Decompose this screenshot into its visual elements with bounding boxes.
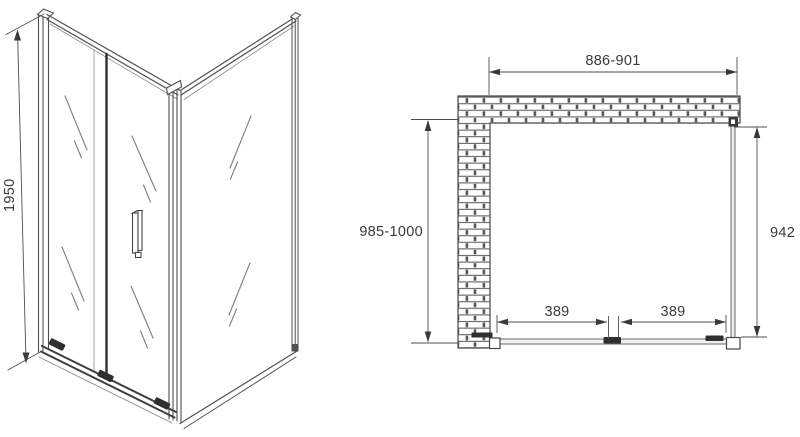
dimension-label-depth: 985-1000 [359, 224, 423, 240]
arrow-down-icon [23, 353, 30, 364]
plan-side-panel [731, 123, 735, 338]
dimension-label-door-left: 389 [544, 304, 569, 320]
shower-enclosure-drawing: 1950 886- [0, 0, 800, 437]
wall-bracket-top [729, 117, 739, 127]
door-track [472, 316, 741, 349]
arrow-up-icon [14, 30, 21, 41]
top-rail [47, 15, 180, 100]
arrow-up-icon [754, 127, 761, 138]
arrow-left-icon [489, 69, 500, 76]
dimension-label-side: 942 [770, 225, 795, 241]
dimension-label-door-right: 389 [660, 304, 685, 320]
plan-view: 886-901 985-1000 942 389 [359, 53, 795, 349]
arrow-down-icon [425, 332, 432, 343]
dimension-width-886-901: 886-901 [489, 53, 737, 95]
corner-profile-right [727, 338, 741, 350]
glass-shine-marks [62, 96, 251, 348]
technical-drawing-page: 1950 886- [0, 0, 800, 437]
dimension-label-width: 886-901 [585, 53, 640, 69]
wall-bracket-left [472, 333, 493, 338]
arrow-up-icon [425, 120, 432, 131]
roller-right [706, 336, 724, 342]
brick-wall [458, 96, 740, 348]
isometric-view: 1950 [2, 9, 301, 429]
arrow-right-icon [596, 319, 607, 326]
arrow-left-icon [497, 319, 508, 326]
arrow-down-icon [754, 326, 761, 337]
left-frame-post [38, 9, 54, 352]
dimension-door-left-389: 389 [497, 304, 607, 333]
side-panel [180, 13, 301, 429]
arrow-right-icon [715, 319, 726, 326]
arrow-left-icon [621, 319, 632, 326]
dimension-side-942: 942 [734, 127, 795, 337]
door-handle [133, 211, 143, 258]
wall-profile-left [490, 338, 501, 349]
dimension-label-height: 1950 [2, 179, 18, 212]
front-right-post [167, 81, 182, 424]
dimension-door-right-389: 389 [621, 304, 726, 333]
arrow-right-icon [726, 69, 737, 76]
dimension-depth-985-1000: 985-1000 [359, 120, 458, 344]
dimension-height-1950: 1950 [2, 14, 44, 370]
